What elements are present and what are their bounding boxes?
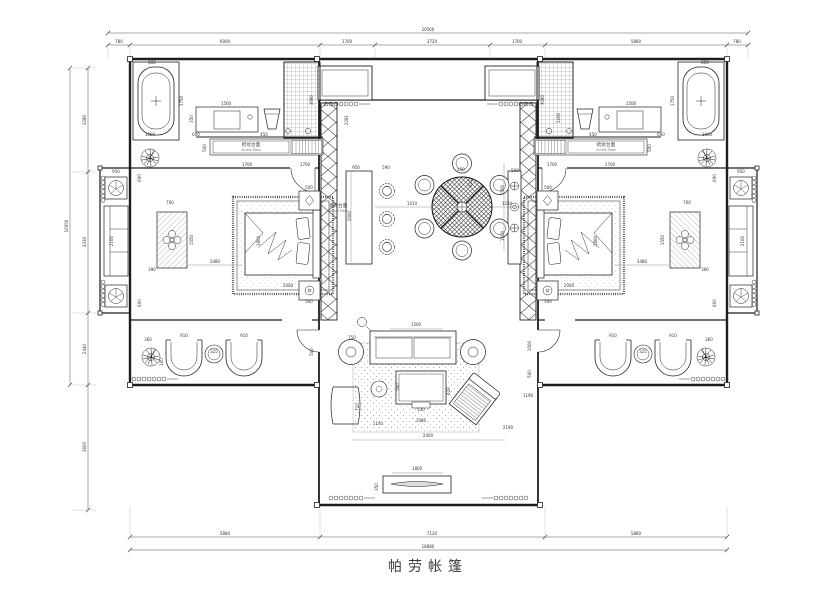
dim-label: 500 [527,370,532,378]
dim-label: 910 [669,333,677,338]
dim-label: 2100 [740,235,745,246]
dim-label: 910 [609,333,617,338]
dim-label: 3720 [427,39,438,44]
dim-label: 1500 [500,230,505,241]
dim-label: 520 [417,407,425,412]
dim-label: 390 [148,267,156,272]
dim-label: 4330 [82,236,87,247]
dim-label: 18880 [422,544,435,549]
living-sofa [370,331,456,364]
dim-label: 10050 [64,219,69,232]
side-table [371,381,387,397]
dim-label: 1800 [412,466,423,471]
dim-label: 1700 [242,162,253,167]
text-label: Accent Table [328,209,348,213]
dim-label: 800 [701,60,709,65]
dim-label: 1000 [145,132,156,137]
dim-label: 500 [544,299,552,304]
dim-label: 100 [159,358,164,366]
living-coffee-table [396,371,446,404]
dim-label: 3600 [82,441,87,452]
dim-label: 1700 [342,39,353,44]
dim-label: 500 [511,168,519,173]
dim-label: 1080 [416,418,427,423]
dim-label: 1550 [660,234,665,245]
dim-label: 950 [737,169,745,174]
dim-label: 450 [260,132,268,137]
dim-label: 350 [189,115,194,123]
dim-label: 600 [137,174,142,182]
dim-label: 600 [712,174,717,182]
dim-label: 5880 [220,531,231,536]
dim-label: 950 [112,169,120,174]
dim-label: 500 [309,348,314,356]
dim-label: 512 [468,179,473,187]
dim-label: 1700 [512,39,523,44]
dim-label: 2281 [344,114,349,125]
drawing-title: 帕劳帐篷 [388,559,468,575]
dim-label: 5880 [631,531,642,536]
dim-label: 2100 [109,235,114,246]
dim-label: 500 [305,185,313,190]
floor-lamp [358,318,367,327]
dim-label: 1700 [605,162,616,167]
text-label: Accent Table [596,148,616,152]
dim-label: 720 [355,403,360,411]
dim-label: 1000 [527,340,532,351]
text-label: 装饰台面 [329,202,348,209]
dim-label: 3480 [637,259,648,264]
dim-label: 1500 [626,101,637,106]
dim-label: 500 [647,144,652,152]
dim-label: 950 [352,165,360,170]
dim-label: 500 [305,299,313,304]
dim-label: 3080 [540,94,545,105]
dim-label: 1200 [556,112,561,123]
dim-label: 1500 [411,322,422,327]
dim-label: 1800 [593,235,598,246]
text-label: 梳妆台面 [242,141,261,148]
dim-label: 5880 [631,39,642,44]
dim-label: 390 [701,267,709,272]
dim-label: 1800 [256,235,261,246]
dim-label: 700 [683,200,691,205]
dim-label: 500 [544,185,552,190]
dim-label: 3480 [210,259,221,264]
dim-label: 800 [148,60,156,65]
dim-label: 620 [446,387,451,395]
dim-label: 1234 [502,201,513,206]
dim-label: 1190 [523,393,534,398]
dim-label: 1500 [221,101,232,106]
dim-label: 325 [210,349,218,354]
dim-label: 2000 [283,283,294,288]
dim-label: 2400 [423,433,434,438]
text-label: Accent Table [241,148,261,152]
dim-label: 325 [639,349,647,354]
dim-label: 20560 [422,27,435,32]
dim-label: 3080 [309,94,314,105]
dim-label: 1700 [547,162,558,167]
dim-label: 910 [180,333,188,338]
dim-label: 600 [137,299,142,307]
swivel-chair [339,340,364,365]
dim-label: 1550 [189,234,194,245]
floor-plan-canvas: 2056078060001700372017005880780588071205… [0,0,837,592]
dim-label: 2440 [82,343,87,354]
dim-label: 3280 [82,114,87,125]
dim-label: 750 [348,335,356,340]
dim-label: 350 [374,483,379,491]
dim-label: 1500 [500,184,505,195]
dim-label: 1000 [702,132,713,137]
dim-label: 1700 [300,162,311,167]
dim-label: 910 [240,333,248,338]
dim-label: 7120 [427,531,438,536]
dim-label: 6000 [220,39,231,44]
swivel-chair [461,340,486,365]
dim-label: 360 [144,337,152,342]
dim-label: 450 [589,132,597,137]
dim-label: 600 [712,299,717,307]
dim-label: 1140 [373,421,384,426]
dim-label: 590 [382,165,390,170]
floor-plan-page: 2056078060001700372017005880780588071205… [0,0,837,592]
dim-label: 780 [733,39,741,44]
dim-label: 2000 [564,283,575,288]
dim-label: 500 [202,144,207,152]
dim-label: 600 [657,132,665,137]
dim-label: 360 [705,337,713,342]
dim-label: 1750 [179,95,184,106]
dim-label: 1014 [407,201,418,206]
dim-label: 500 [395,383,400,391]
dim-label: 2190 [503,425,514,430]
text-label: 梳妆台面 [597,141,616,148]
dim-label: 700 [166,200,174,205]
dim-label: 600 [192,132,200,137]
dim-label: 1750 [670,95,675,106]
dim-label: 780 [115,39,123,44]
dim-label: 450 [457,167,465,172]
